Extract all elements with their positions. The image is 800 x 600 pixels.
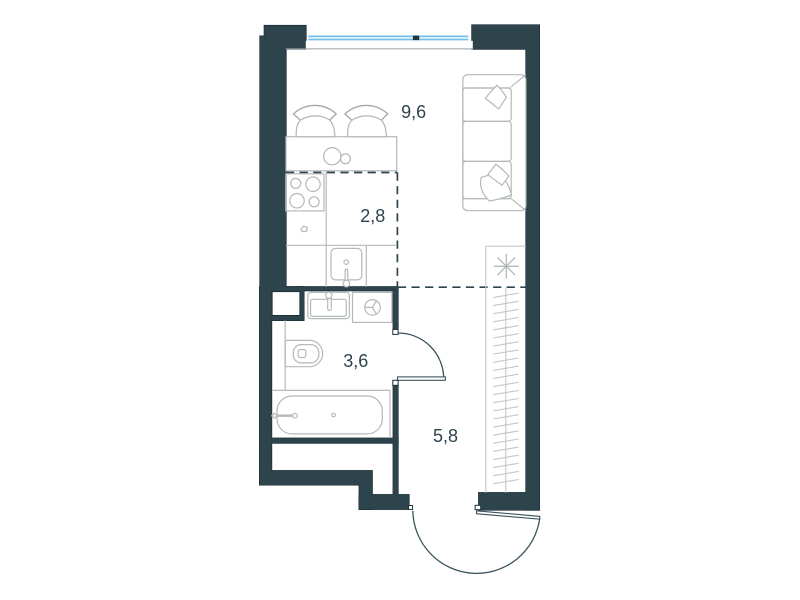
svg-text:5,8: 5,8: [433, 426, 458, 446]
svg-text:3,6: 3,6: [343, 351, 368, 371]
svg-text:9,6: 9,6: [401, 102, 426, 122]
svg-text:2,8: 2,8: [360, 206, 385, 226]
